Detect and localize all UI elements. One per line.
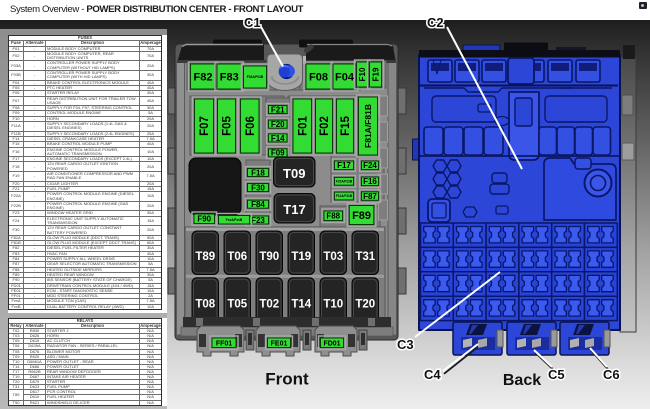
svg-text:Front: Front — [265, 370, 309, 389]
svg-text:F19: F19 — [371, 67, 380, 81]
svg-text:C1: C1 — [244, 15, 261, 30]
svg-text:T03: T03 — [323, 251, 343, 263]
svg-text:F09: F09 — [271, 149, 285, 158]
svg-text:T90: T90 — [259, 251, 279, 263]
svg-text:C5: C5 — [548, 367, 565, 382]
svg-text:F90: F90 — [197, 215, 211, 224]
svg-text:F87: F87 — [363, 192, 377, 201]
svg-text:F21: F21 — [271, 105, 285, 114]
svg-text:F06: F06 — [245, 116, 257, 136]
svg-text:F89: F89 — [352, 210, 371, 222]
svg-text:F10: F10 — [358, 67, 367, 81]
svg-text:T08: T08 — [195, 298, 215, 310]
svg-text:F05: F05 — [222, 115, 234, 135]
svg-text:T89: T89 — [195, 251, 215, 263]
svg-text:F30: F30 — [251, 183, 265, 192]
svg-text:F04: F04 — [335, 71, 355, 83]
svg-text:F01: F01 — [297, 115, 309, 135]
svg-text:C4: C4 — [424, 367, 441, 382]
svg-text:F17: F17 — [337, 161, 351, 170]
svg-text:T14: T14 — [291, 298, 311, 310]
svg-text:C6: C6 — [603, 367, 620, 382]
svg-text:C3: C3 — [397, 337, 414, 352]
svg-text:F16: F16 — [363, 177, 377, 186]
svg-text:F82: F82 — [194, 71, 213, 83]
svg-text:T10: T10 — [323, 298, 343, 310]
svg-text:F23: F23 — [251, 216, 265, 225]
svg-text:FF01: FF01 — [216, 340, 232, 347]
svg-text:FxxA/FxxB: FxxA/FxxB — [226, 218, 243, 222]
svg-text:T05: T05 — [227, 298, 247, 310]
svg-text:FE01: FE01 — [271, 340, 288, 347]
svg-text:F11A/F11B: F11A/F11B — [336, 194, 353, 198]
svg-text:Back: Back — [503, 372, 541, 389]
svg-text:F84: F84 — [251, 200, 265, 209]
svg-text:T19: T19 — [291, 251, 311, 263]
svg-text:C2: C2 — [427, 15, 444, 30]
svg-text:T06: T06 — [227, 251, 247, 263]
svg-text:F83: F83 — [220, 71, 239, 83]
svg-text:F88: F88 — [326, 212, 340, 221]
svg-text:T31: T31 — [355, 251, 375, 263]
svg-text:F20: F20 — [271, 120, 285, 129]
svg-text:F24: F24 — [363, 161, 377, 170]
svg-text:F02: F02 — [319, 116, 331, 136]
svg-text:F07: F07 — [199, 116, 211, 136]
svg-text:F02A/F03B: F02A/F03B — [247, 75, 264, 79]
svg-text:F18: F18 — [251, 168, 265, 177]
svg-text:F14: F14 — [271, 134, 285, 143]
svg-text:T17: T17 — [283, 202, 305, 217]
svg-text:T09: T09 — [283, 166, 305, 181]
svg-text:F22A/F22B: F22A/F22B — [336, 179, 353, 183]
svg-text:T20: T20 — [355, 298, 375, 310]
svg-text:F81A/F81B: F81A/F81B — [363, 104, 373, 148]
svg-text:F08: F08 — [309, 71, 328, 83]
svg-text:T02: T02 — [259, 298, 279, 310]
svg-text:F15: F15 — [340, 115, 352, 135]
svg-text:FD01: FD01 — [323, 340, 340, 347]
